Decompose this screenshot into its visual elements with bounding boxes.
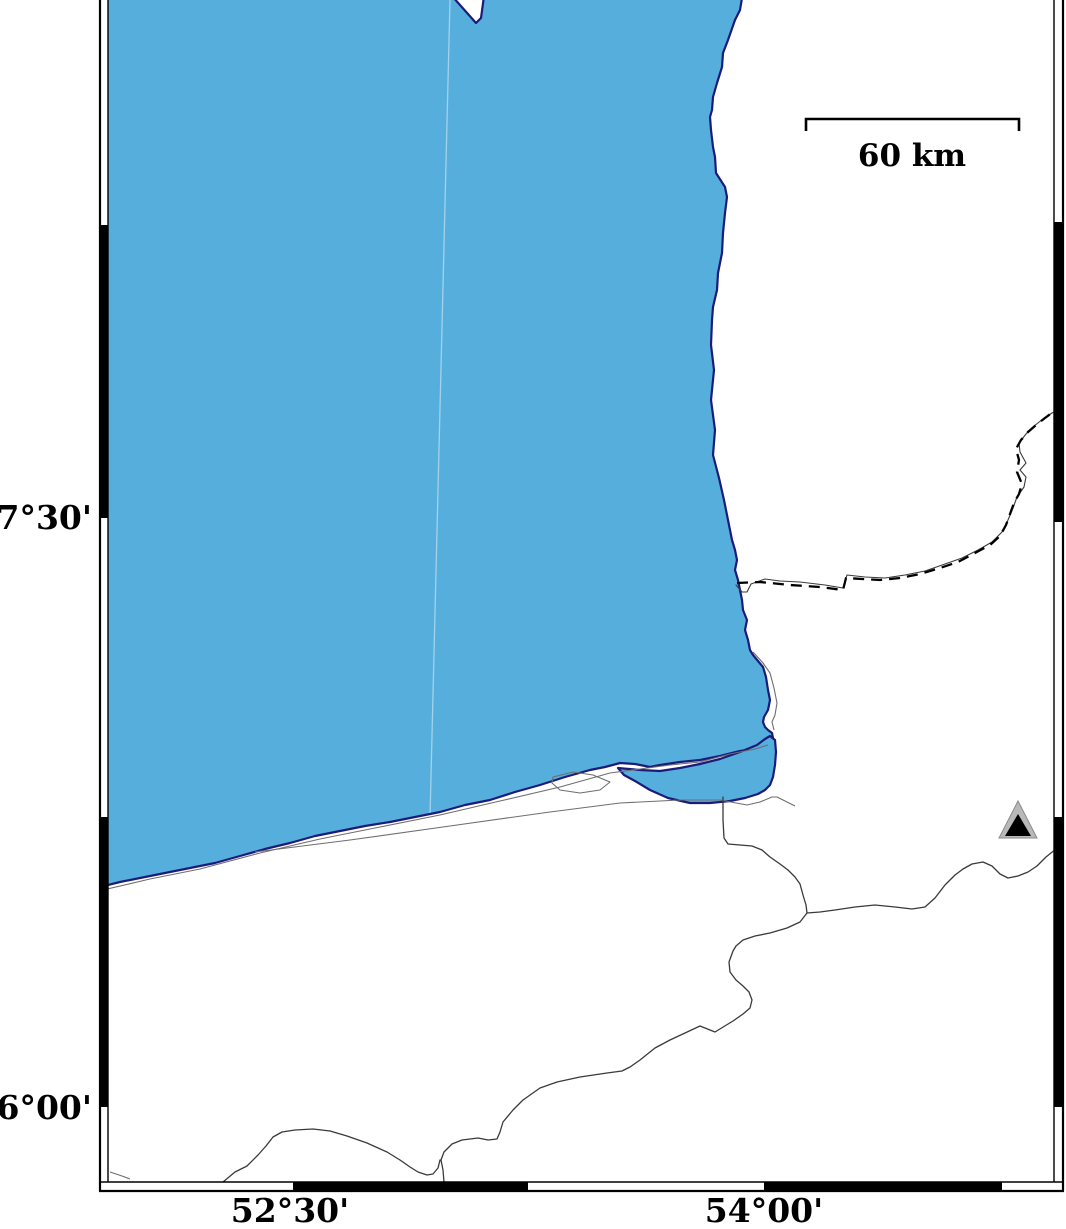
map-canvas: 60 km 37°30' 36°00' 52°30' 54°00'	[0, 0, 1066, 1229]
frame-segment	[100, 225, 108, 518]
border-river	[736, 408, 1062, 592]
river-east-branch	[807, 849, 1056, 913]
triangle-marker-icon	[999, 801, 1037, 838]
map-figure: 60 km 37°30' 36°00' 52°30' 54°00'	[0, 0, 1066, 1229]
frame-segment	[293, 1182, 528, 1190]
dashed-boundary-line	[737, 407, 1062, 590]
scale-bar	[806, 119, 1019, 131]
lon-label-5400: 54°00'	[705, 1191, 823, 1229]
river-main	[441, 797, 807, 1182]
lat-label-3600: 36°00'	[0, 1088, 92, 1127]
sea-water	[100, 0, 773, 888]
lat-label-3730: 37°30'	[0, 498, 92, 537]
frame-segment	[100, 817, 108, 1107]
frame-segment	[764, 1182, 1002, 1190]
scale-bar-label: 60 km	[858, 138, 966, 174]
corner-fragment-line	[110, 1172, 130, 1179]
lon-label-5230: 52°30'	[231, 1191, 349, 1229]
frame-segment	[1054, 817, 1063, 1107]
frame-segment	[1054, 222, 1063, 522]
river-west-branch	[223, 1129, 440, 1182]
